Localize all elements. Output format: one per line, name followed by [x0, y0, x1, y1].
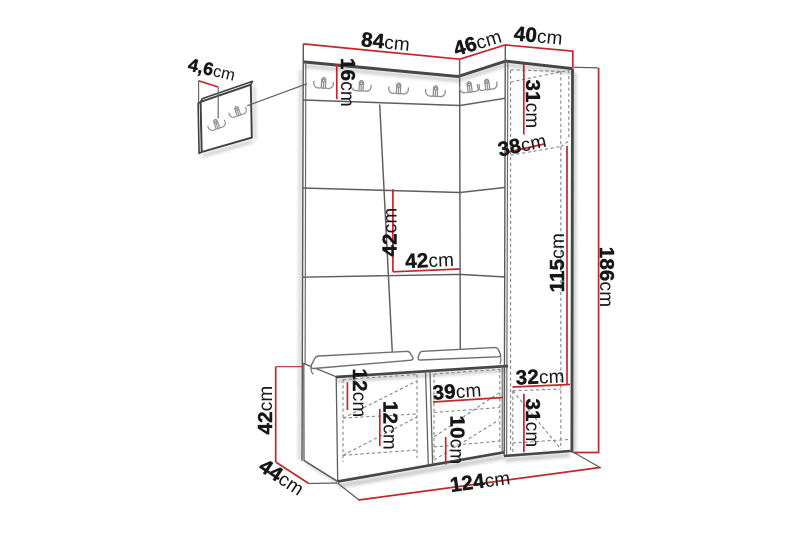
svg-text:38cm: 38cm: [496, 129, 549, 162]
svg-text:40cm: 40cm: [513, 22, 564, 49]
svg-text:12cm: 12cm: [348, 369, 371, 418]
svg-text:31cm: 31cm: [521, 80, 544, 129]
svg-text:39cm: 39cm: [432, 378, 482, 404]
svg-text:44cm: 44cm: [255, 455, 309, 501]
svg-text:115cm: 115cm: [546, 233, 569, 292]
svg-text:12cm: 12cm: [379, 401, 402, 450]
svg-text:42cm: 42cm: [254, 386, 277, 435]
svg-text:32cm: 32cm: [515, 364, 565, 389]
svg-text:42cm: 42cm: [379, 208, 402, 257]
svg-text:42cm: 42cm: [405, 248, 455, 273]
svg-text:10cm: 10cm: [446, 416, 469, 465]
svg-text:4,6cm: 4,6cm: [186, 55, 237, 85]
svg-text:186cm: 186cm: [595, 247, 618, 308]
svg-text:84cm: 84cm: [360, 28, 411, 56]
svg-text:16cm: 16cm: [336, 58, 359, 107]
svg-text:124cm: 124cm: [449, 466, 512, 497]
svg-text:46cm: 46cm: [451, 25, 505, 61]
svg-text:31cm: 31cm: [521, 399, 544, 448]
